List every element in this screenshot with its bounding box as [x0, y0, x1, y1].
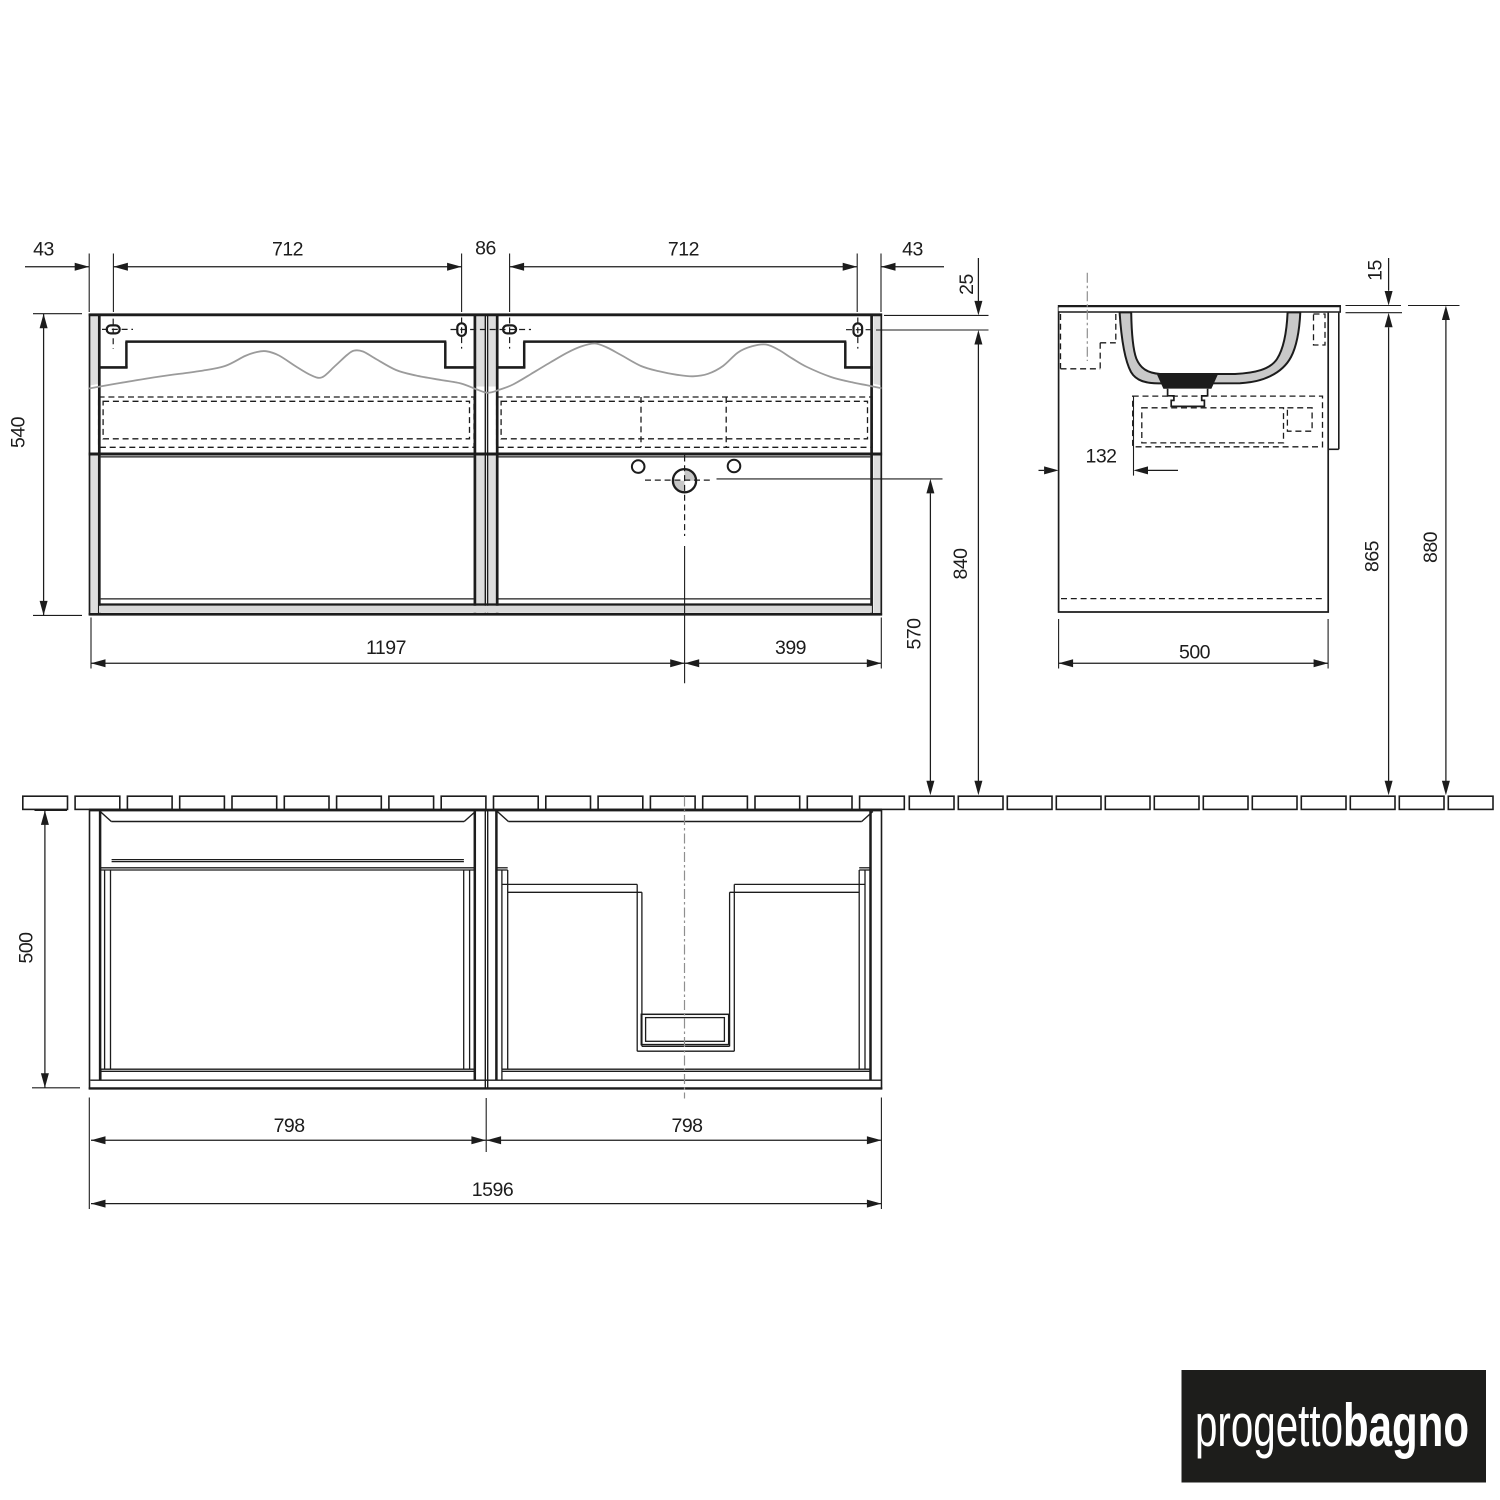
svg-text:500: 500 [1179, 642, 1211, 664]
svg-text:880: 880 [1420, 531, 1442, 563]
svg-text:840: 840 [950, 548, 972, 580]
svg-text:1596: 1596 [472, 1179, 513, 1201]
svg-text:132: 132 [1085, 445, 1116, 467]
svg-text:865: 865 [1361, 540, 1383, 572]
svg-text:15: 15 [1364, 260, 1386, 281]
svg-text:43: 43 [33, 239, 54, 261]
svg-text:570: 570 [903, 618, 925, 650]
svg-text:798: 798 [671, 1115, 702, 1137]
svg-text:399: 399 [775, 637, 806, 659]
svg-text:progettobagno: progettobagno [1195, 1392, 1469, 1459]
svg-text:43: 43 [902, 239, 923, 261]
svg-text:500: 500 [15, 932, 37, 964]
svg-text:86: 86 [475, 238, 496, 260]
svg-text:540: 540 [8, 416, 30, 448]
svg-text:798: 798 [274, 1115, 305, 1137]
svg-text:712: 712 [272, 239, 303, 261]
svg-text:25: 25 [956, 274, 978, 295]
svg-text:1197: 1197 [366, 637, 406, 659]
svg-text:712: 712 [668, 239, 699, 261]
